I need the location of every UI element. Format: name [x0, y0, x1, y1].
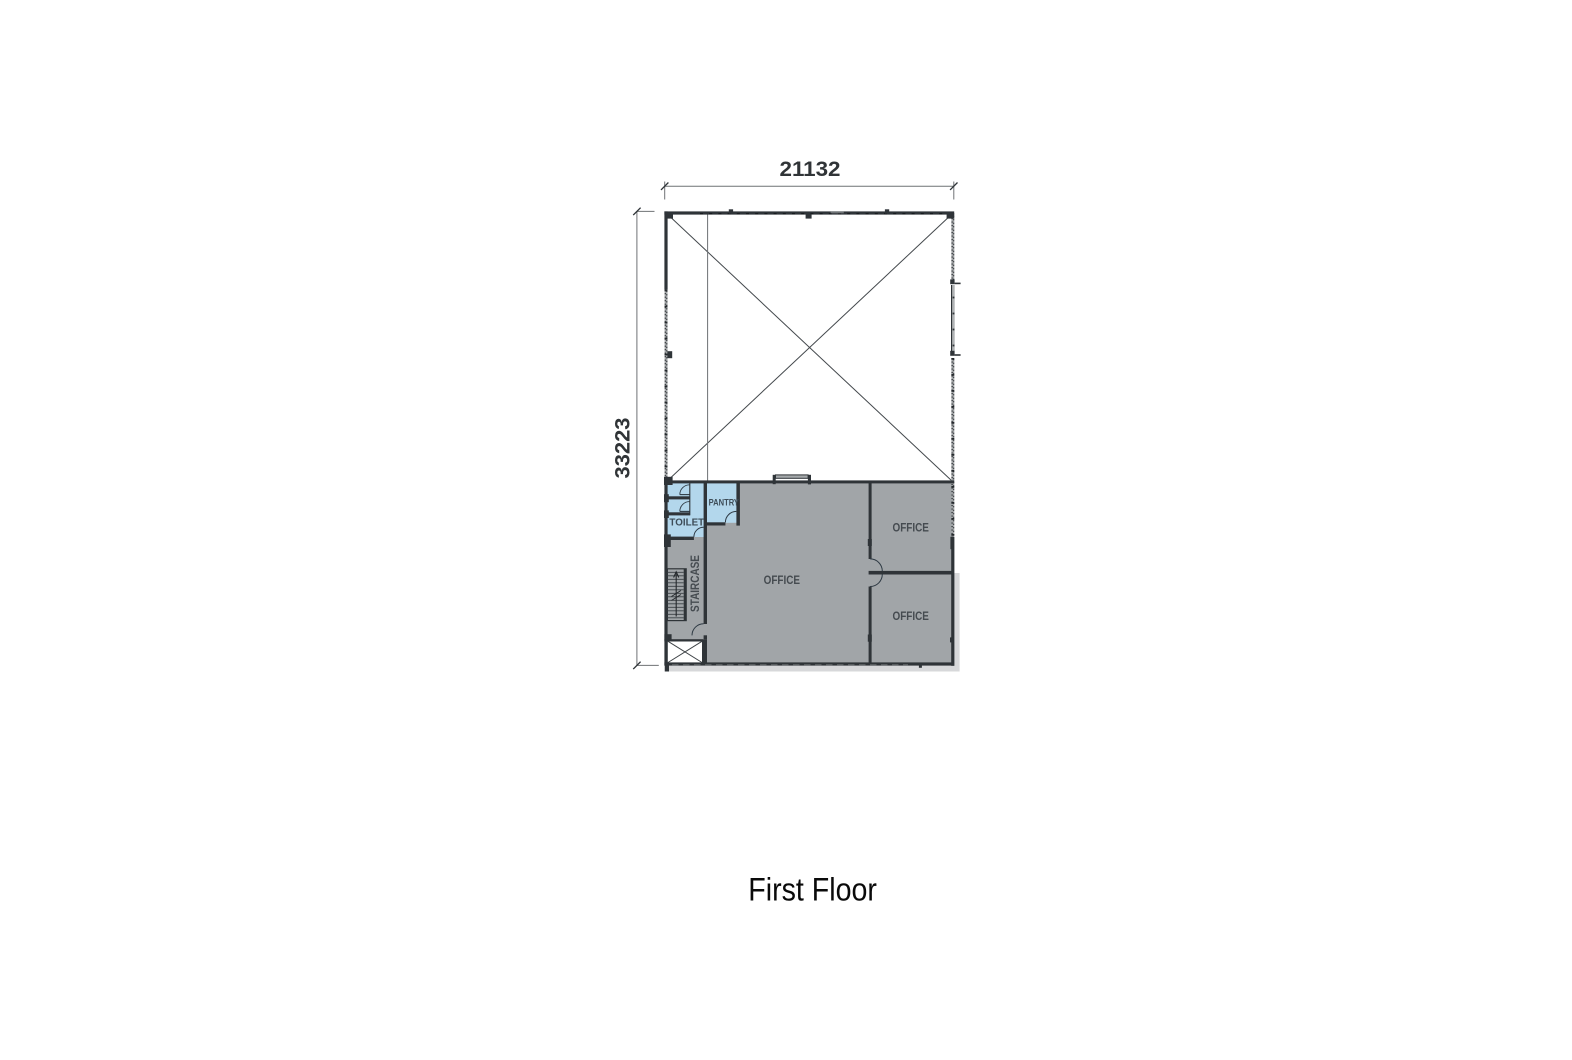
svg-text:OFFICE: OFFICE: [893, 520, 929, 534]
svg-text:21132: 21132: [780, 157, 841, 181]
svg-text:TOILET: TOILET: [669, 518, 704, 529]
svg-text:STAIRCASE: STAIRCASE: [688, 555, 702, 612]
svg-text:OFFICE: OFFICE: [893, 609, 929, 623]
svg-text:PANTRY: PANTRY: [709, 497, 740, 508]
svg-text:33223: 33223: [611, 417, 635, 478]
svg-text:First Floor: First Floor: [748, 871, 877, 907]
svg-text:OFFICE: OFFICE: [764, 573, 800, 587]
